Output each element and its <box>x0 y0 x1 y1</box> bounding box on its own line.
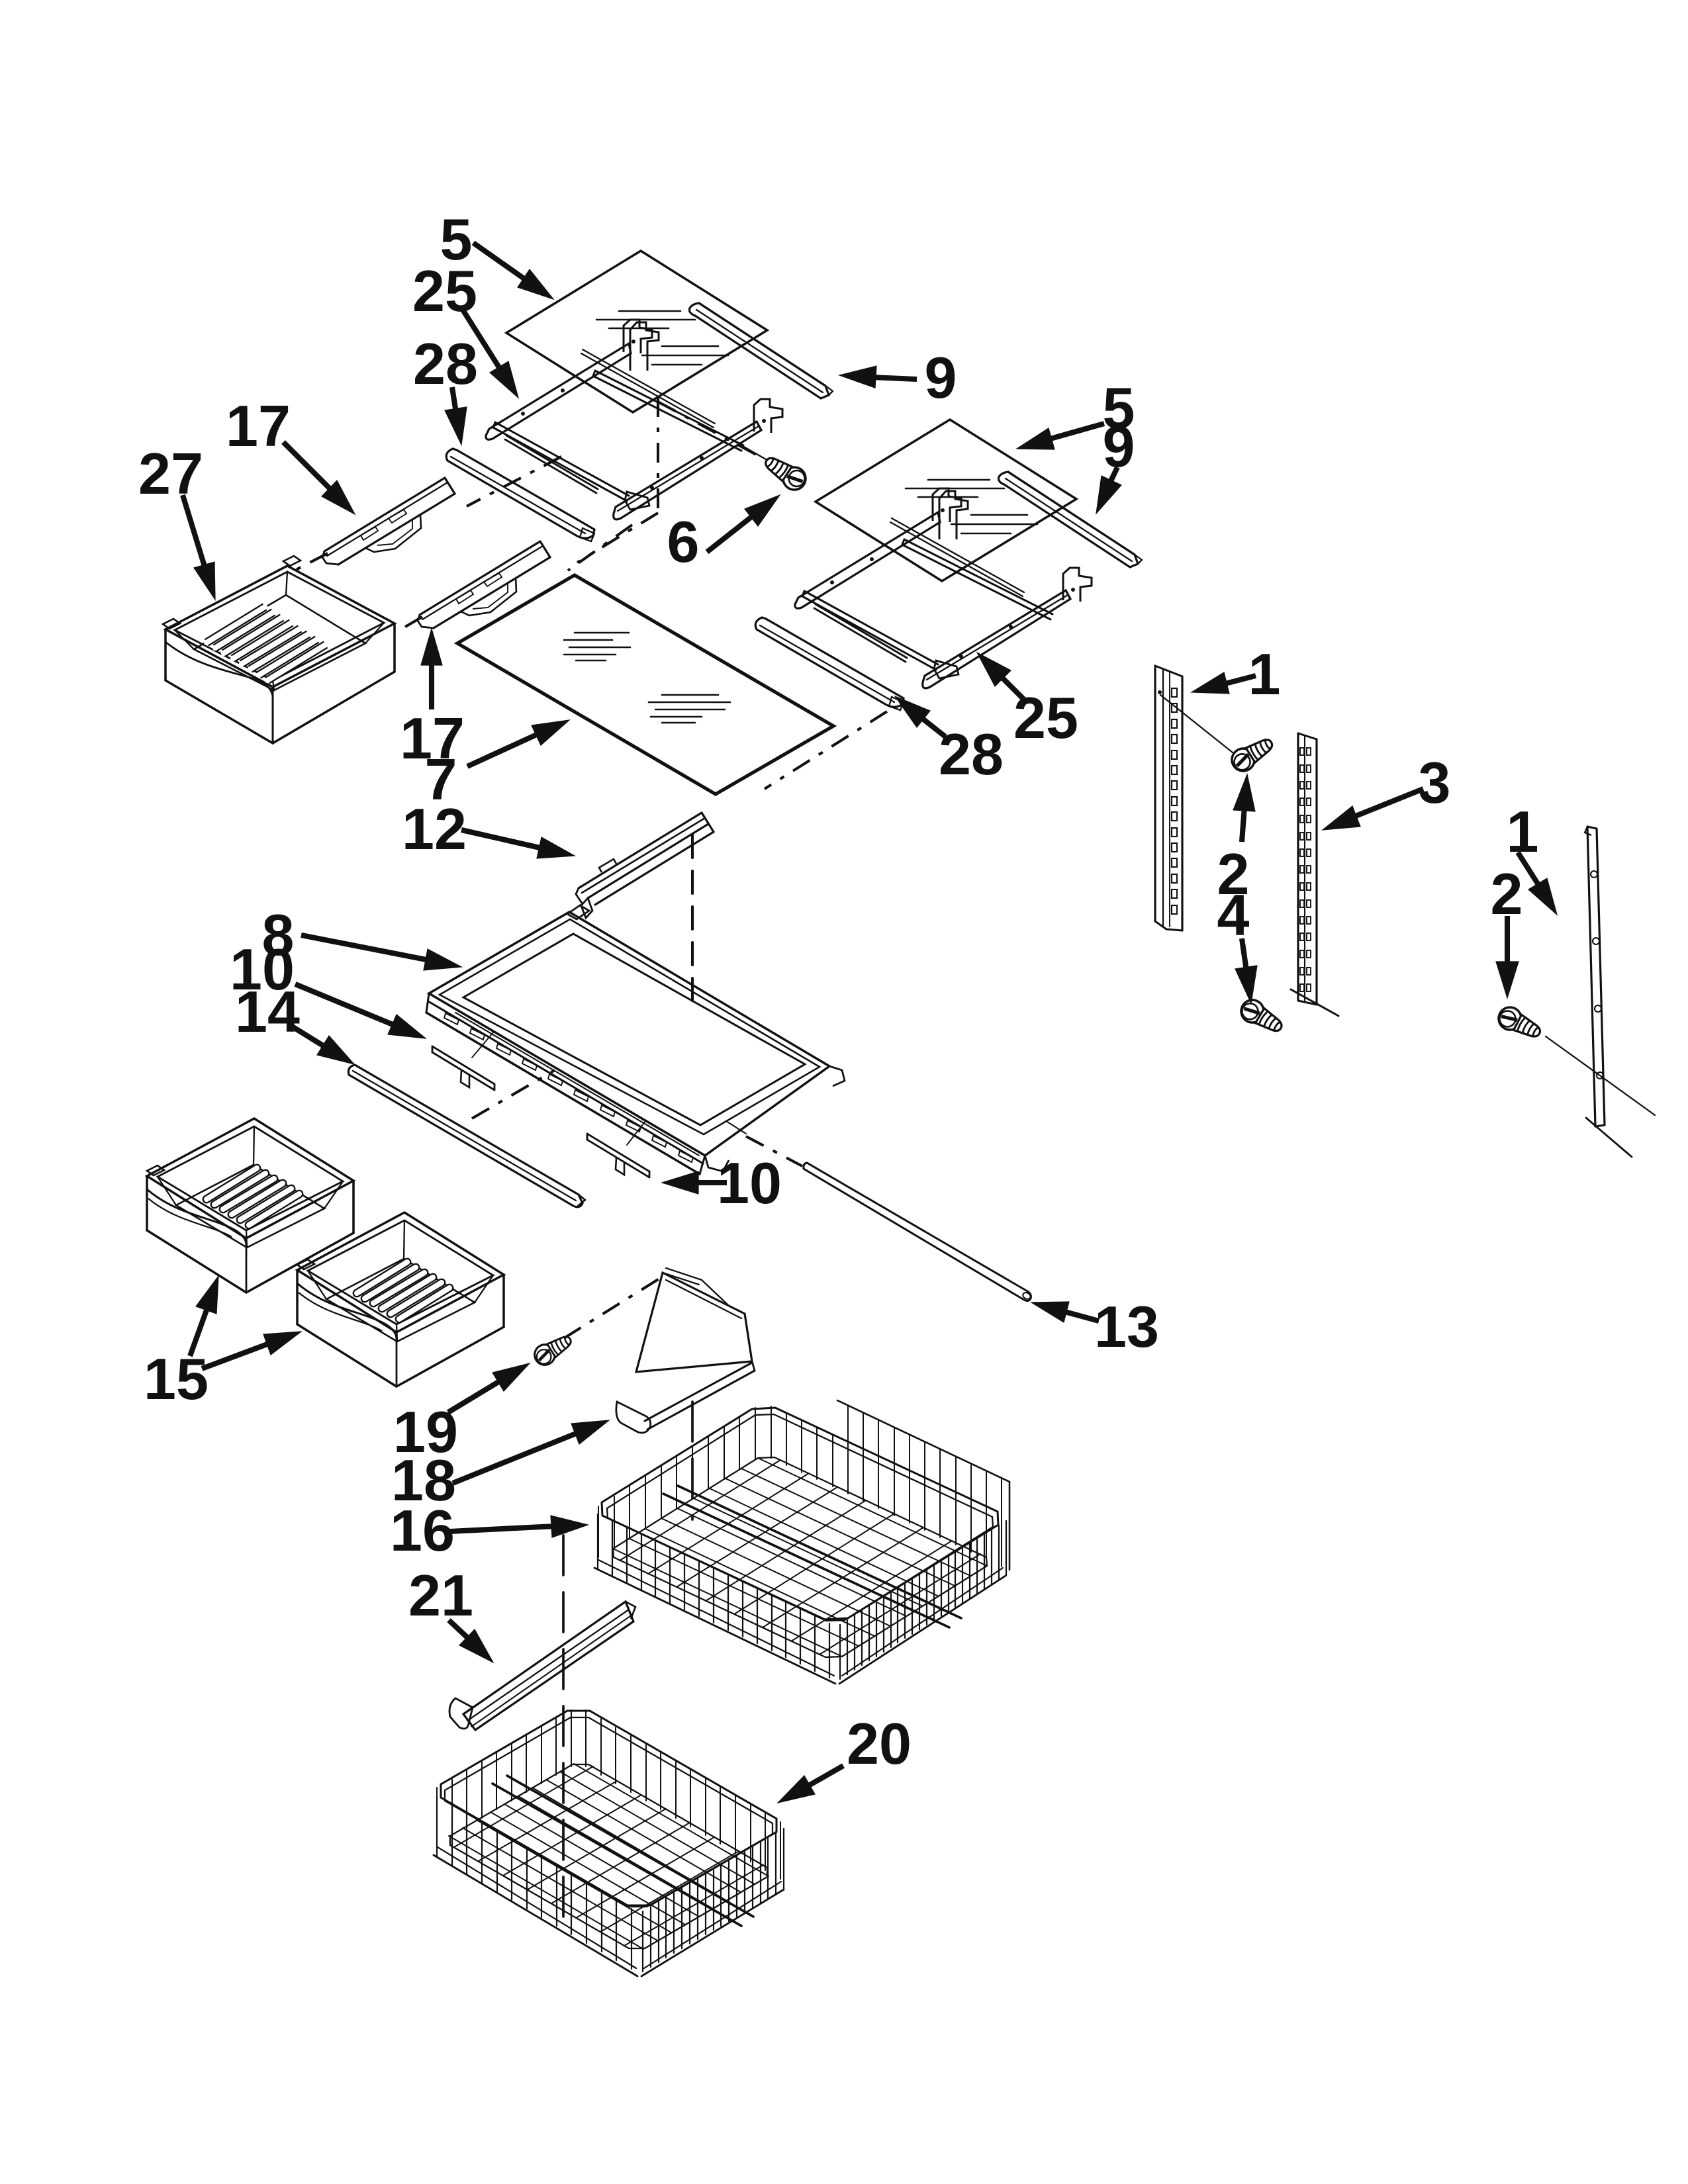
svg-text:3: 3 <box>1419 750 1451 815</box>
svg-text:27: 27 <box>138 441 203 506</box>
svg-text:21: 21 <box>408 1563 473 1628</box>
svg-text:6: 6 <box>667 509 700 574</box>
svg-text:28: 28 <box>939 721 1004 787</box>
svg-text:25: 25 <box>1013 685 1078 751</box>
svg-text:9: 9 <box>925 345 957 410</box>
svg-text:16: 16 <box>390 1498 455 1563</box>
svg-text:14: 14 <box>235 979 300 1044</box>
svg-text:17: 17 <box>226 393 291 459</box>
svg-text:15: 15 <box>144 1346 209 1412</box>
svg-text:12: 12 <box>402 796 467 862</box>
svg-text:4: 4 <box>1217 882 1250 948</box>
svg-text:1: 1 <box>1507 799 1539 864</box>
svg-text:20: 20 <box>847 1711 912 1776</box>
svg-text:13: 13 <box>1094 1294 1159 1359</box>
svg-text:28: 28 <box>413 331 478 396</box>
